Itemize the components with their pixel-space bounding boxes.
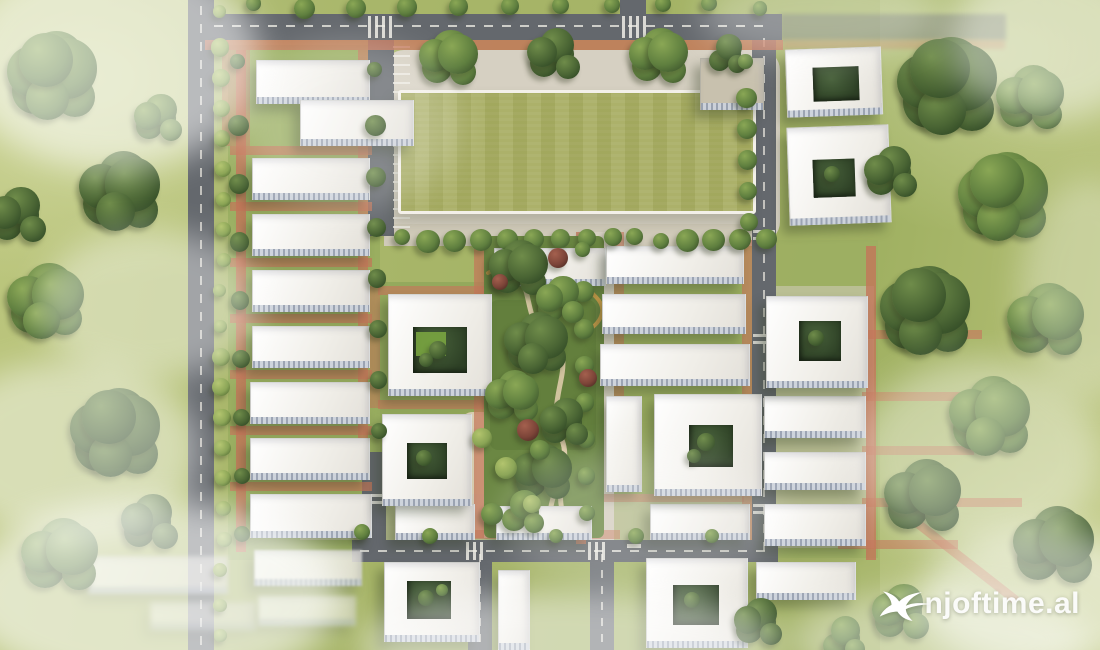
building-facade (255, 579, 361, 586)
building-facade (607, 485, 641, 492)
tree (729, 229, 751, 251)
road-marking (200, 24, 202, 33)
tree (556, 55, 580, 79)
tree (232, 350, 250, 368)
building-facade (497, 533, 591, 540)
road-marking (763, 110, 765, 119)
tree (760, 623, 782, 645)
tree (736, 88, 757, 109)
building-facade (251, 473, 369, 480)
masterplan-scene (0, 0, 1100, 650)
red-path (230, 258, 372, 267)
road-marking (304, 25, 313, 27)
road-marking (629, 16, 632, 38)
tree (369, 320, 387, 338)
road-marking (394, 25, 403, 27)
road-marking (358, 25, 367, 27)
road-marking (200, 312, 202, 321)
building-slab (88, 556, 228, 594)
road-marking (200, 168, 202, 177)
road-marking (393, 64, 410, 66)
road-marking (646, 25, 655, 27)
building-slab (600, 344, 750, 386)
building-slab (252, 158, 370, 200)
tree (216, 192, 231, 207)
road-marking (200, 384, 202, 393)
tree (23, 302, 60, 339)
building-facade (259, 619, 355, 626)
tree (19, 33, 73, 87)
tree (579, 369, 597, 387)
tree (368, 269, 387, 288)
road-marking (200, 240, 202, 249)
tree (734, 606, 762, 634)
tree (213, 100, 230, 117)
road-marking (232, 25, 241, 27)
road-marking (200, 204, 202, 213)
road-marking (200, 258, 202, 267)
building-facade (253, 193, 369, 200)
tree (530, 440, 550, 460)
building-slab (252, 270, 370, 312)
tree (472, 428, 492, 448)
road-marking (718, 25, 727, 27)
road-marking (754, 25, 763, 27)
building-slab (756, 562, 856, 600)
road-marking (382, 16, 385, 38)
road-marking (200, 528, 202, 537)
building-facade (655, 489, 761, 496)
building-slab (258, 596, 356, 626)
road-marking (200, 474, 202, 483)
road-marking (610, 25, 619, 27)
tree (527, 37, 557, 67)
road-marking (648, 550, 657, 552)
tree (214, 320, 227, 333)
road-marking (622, 16, 625, 38)
tree (438, 34, 478, 74)
bird-icon (878, 584, 932, 624)
tree (501, 0, 519, 15)
building-facade (757, 593, 855, 600)
tree (893, 173, 917, 197)
tree (214, 130, 231, 147)
red-path (370, 286, 380, 408)
tree (152, 523, 178, 549)
road-marking (763, 272, 765, 281)
tree (756, 229, 777, 250)
building-slab (764, 396, 866, 438)
tree (970, 154, 1024, 208)
tree (892, 268, 946, 322)
road-marking (268, 25, 277, 27)
road-marking (450, 550, 459, 552)
tree (213, 563, 227, 577)
building-facade (89, 587, 227, 594)
tree (575, 242, 589, 256)
building-slab (252, 214, 370, 256)
building-slab (498, 570, 530, 650)
building-facade (253, 305, 369, 312)
tree (481, 503, 503, 525)
road-marking (200, 222, 202, 231)
tree (160, 119, 182, 141)
red-path (866, 246, 876, 560)
road-marking (601, 586, 603, 594)
building-facade (251, 531, 371, 538)
tree (1032, 289, 1084, 341)
tree (845, 639, 865, 650)
road-marking (601, 602, 603, 610)
tree (702, 229, 724, 251)
road-marking (763, 362, 765, 371)
road-marking (763, 128, 765, 137)
road-marking (763, 344, 765, 353)
tree (808, 330, 824, 346)
road-marking (430, 25, 439, 27)
tree (687, 449, 701, 463)
tree (864, 155, 894, 185)
road-marking (636, 16, 639, 38)
red-path (205, 40, 783, 50)
tree (518, 343, 548, 373)
building-facade (647, 641, 747, 648)
tree (1039, 512, 1094, 567)
tree (566, 423, 588, 445)
road-marking (200, 186, 202, 195)
red-path (862, 446, 974, 455)
road-marking (375, 16, 378, 38)
road-marking (763, 254, 765, 263)
road-marking (200, 78, 202, 87)
building-slab (764, 452, 866, 490)
tree (20, 216, 46, 242)
road-marking (484, 25, 493, 27)
tree (508, 244, 548, 284)
building-facade (253, 361, 369, 368)
courtyard-building (785, 46, 883, 117)
red-path (230, 314, 372, 323)
inner-courtyard (812, 66, 859, 102)
red-path (230, 146, 372, 155)
road-marking (702, 550, 711, 552)
tree (738, 54, 752, 68)
building-slab (650, 504, 750, 540)
tree (213, 5, 226, 18)
building-facade (765, 483, 865, 490)
tree (443, 230, 465, 252)
red-path (230, 482, 372, 491)
building-slab (764, 504, 866, 546)
road-marking (393, 82, 410, 84)
road-marking (520, 25, 529, 27)
tree (492, 274, 508, 290)
road-marking (432, 550, 441, 552)
road-marking (393, 73, 410, 75)
building-facade (603, 327, 745, 334)
building-slab (250, 382, 370, 424)
tree (419, 353, 433, 367)
tree (753, 1, 767, 15)
road-marking (763, 290, 765, 299)
road-marking (200, 276, 202, 285)
tree (46, 524, 98, 576)
road-marking (592, 25, 601, 27)
road-marking (763, 308, 765, 317)
road-marking (448, 25, 457, 27)
tree (229, 174, 249, 194)
road-marking (763, 146, 765, 155)
tree (416, 230, 439, 253)
road-marking (763, 200, 765, 209)
tree (604, 228, 622, 246)
road-marking (214, 25, 223, 27)
tree (705, 529, 719, 543)
road-marking (200, 456, 202, 465)
building-slab (602, 294, 746, 334)
road-marking (200, 60, 202, 69)
road-marking (200, 42, 202, 51)
tree (418, 590, 434, 606)
tree (536, 284, 564, 312)
tree (684, 592, 700, 608)
road-marking (393, 226, 410, 228)
road-marking (630, 550, 639, 552)
tree (737, 119, 757, 139)
road-marking (466, 25, 475, 27)
tree (211, 38, 230, 57)
road-marking (200, 546, 202, 555)
road-marking (763, 182, 765, 191)
tree (626, 228, 643, 245)
road-marking (601, 570, 603, 578)
road-marking (684, 550, 693, 552)
road-marking (250, 25, 259, 27)
road-marking (389, 16, 392, 38)
road-marking (466, 542, 469, 560)
tree (370, 371, 387, 388)
building-facade (253, 249, 369, 256)
tree (697, 433, 715, 451)
tree (213, 599, 226, 612)
road-marking (200, 510, 202, 519)
tree (578, 467, 595, 484)
building-facade (151, 623, 255, 630)
road-marking (756, 550, 765, 552)
tree (549, 529, 563, 543)
building-facade (383, 499, 471, 506)
red-path (230, 370, 372, 379)
tree (217, 532, 232, 547)
tree (738, 150, 757, 169)
tree (562, 301, 584, 323)
road-marking (200, 330, 202, 339)
tree (416, 450, 432, 466)
tree (517, 419, 539, 441)
tree (676, 229, 699, 252)
building-facade (651, 533, 749, 540)
road-marking (200, 150, 202, 159)
aerial-render: njoftime.al (0, 0, 1100, 650)
road-marking (666, 550, 675, 552)
tree (215, 161, 231, 177)
road-marking (200, 6, 202, 15)
red-path (230, 426, 372, 435)
tree (212, 69, 230, 87)
road-marking (200, 438, 202, 447)
road-marking (538, 25, 547, 27)
road-marking (763, 380, 765, 389)
tree (214, 440, 231, 457)
building-facade (601, 379, 749, 386)
tree (394, 229, 410, 245)
building-facade (765, 431, 865, 438)
building-facade (765, 539, 865, 546)
tree (212, 348, 231, 367)
road-marking (200, 294, 202, 303)
road-marking (200, 114, 202, 123)
tree (121, 503, 154, 536)
tree (909, 465, 961, 517)
tree (96, 192, 135, 231)
road-marking (556, 25, 565, 27)
road-marking (574, 25, 583, 27)
building-slab (250, 438, 370, 480)
building-facade (499, 643, 529, 650)
road-marking (414, 550, 423, 552)
tree (231, 291, 250, 310)
road (205, 14, 782, 40)
road-marking (412, 25, 421, 27)
road-marking (664, 25, 673, 27)
road-marking (200, 366, 202, 375)
road-marking (720, 550, 729, 552)
tree (436, 584, 448, 596)
building-slab (606, 246, 744, 284)
road-marking (601, 634, 603, 642)
tree (495, 457, 517, 479)
tree (628, 528, 644, 544)
road-marking (502, 25, 511, 27)
road-marking (200, 402, 202, 411)
tree (234, 468, 251, 485)
tree (740, 213, 758, 231)
tree (551, 229, 570, 248)
road-marking (393, 55, 410, 57)
road-marking (200, 420, 202, 429)
tree (548, 248, 568, 268)
tree (579, 505, 596, 522)
road-marking (200, 96, 202, 105)
red-path (230, 202, 372, 211)
tree (366, 167, 386, 187)
tree (228, 115, 249, 136)
road-marking (736, 25, 745, 27)
tree (230, 232, 249, 251)
tree (371, 423, 388, 440)
road-marking (340, 25, 349, 27)
tree (354, 524, 370, 540)
tree (230, 54, 244, 68)
tree (966, 417, 1005, 456)
road-marking (393, 217, 410, 219)
tree (824, 166, 840, 182)
tree (82, 390, 136, 444)
building-slab (150, 602, 256, 630)
tree (213, 409, 230, 426)
road-marking (682, 25, 691, 27)
tree (524, 513, 544, 533)
building-slab (252, 326, 370, 368)
tree (422, 528, 438, 544)
road-marking (738, 550, 747, 552)
tree (449, 0, 468, 16)
red-path (378, 400, 484, 409)
road-marking (700, 25, 709, 27)
watermark: njoftime.al (878, 584, 1080, 624)
road-marking (627, 544, 641, 548)
road-marking (378, 550, 387, 552)
tree (134, 102, 162, 130)
tree (1018, 70, 1064, 116)
watermark-text: njoftime.al (924, 587, 1080, 621)
road-marking (200, 348, 202, 357)
road-marking (763, 218, 765, 227)
tree (523, 495, 541, 513)
building-slab (606, 396, 642, 492)
road-marking (763, 164, 765, 173)
building-facade (767, 381, 867, 388)
tree (367, 62, 381, 76)
building-slab (254, 550, 362, 586)
building-facade (251, 417, 369, 424)
building-facade (389, 389, 491, 396)
building-facade (385, 635, 479, 642)
tree (910, 39, 969, 98)
building-facade (607, 277, 743, 284)
tree (648, 32, 688, 72)
road-marking (200, 132, 202, 141)
road-marking (200, 636, 202, 645)
road-marking (200, 492, 202, 501)
road-marking (286, 25, 295, 27)
building-slab (256, 60, 370, 104)
tree (470, 229, 492, 251)
road-marking (368, 16, 371, 38)
tree (540, 406, 568, 434)
tree (233, 409, 250, 426)
building-facade (301, 139, 413, 146)
tree (365, 115, 386, 136)
road-marking (322, 25, 331, 27)
road (780, 14, 1006, 40)
road-marking (601, 618, 603, 626)
building-slab (300, 100, 414, 146)
road-marking (396, 550, 405, 552)
